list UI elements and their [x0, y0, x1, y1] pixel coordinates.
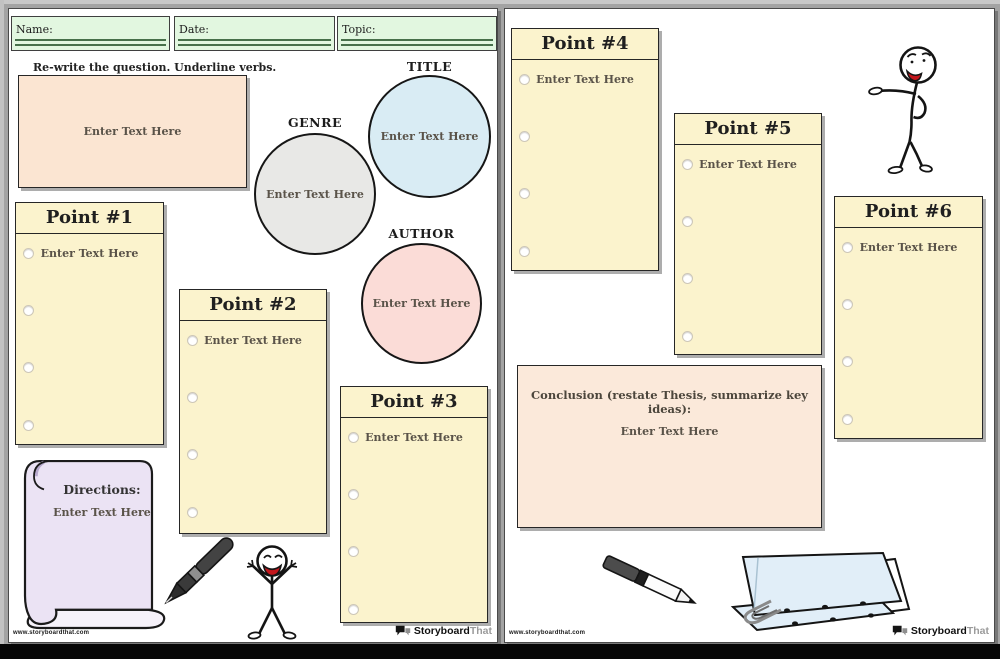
hole-punch — [187, 392, 198, 403]
logo-text-secondary: That — [470, 625, 492, 637]
point-6-box[interactable]: Point #6 Enter Text Here — [834, 196, 983, 439]
hole-punch — [519, 188, 530, 199]
rewrite-question-box[interactable]: Enter Text Here — [18, 75, 247, 188]
name-field-label: Name: — [16, 23, 53, 36]
point-6-placeholder[interactable]: Enter Text Here — [835, 229, 982, 254]
window-edge-left — [0, 0, 4, 659]
title-circle[interactable]: Enter Text Here — [368, 75, 491, 198]
directions-scroll-illustration: Directions: Enter Text Here — [14, 456, 171, 631]
logo-text-primary: Storyboard — [911, 625, 967, 637]
author-circle-placeholder[interactable]: Enter Text Here — [373, 297, 471, 310]
point-5-box[interactable]: Point #5 Enter Text Here — [674, 113, 822, 355]
pointing-stickman-illustration — [865, 44, 945, 184]
point-3-placeholder[interactable]: Enter Text Here — [341, 419, 487, 444]
topic-field[interactable]: Topic: — [337, 16, 497, 51]
paper-stack-illustration — [725, 551, 917, 633]
conclusion-box[interactable]: Conclusion (restate Thesis, summarize ke… — [517, 365, 822, 528]
genre-circle[interactable]: Enter Text Here — [254, 133, 376, 255]
conclusion-label: Conclusion (restate Thesis, summarize ke… — [518, 388, 821, 416]
hole-punch — [519, 246, 530, 257]
hole-punch-column — [187, 335, 197, 518]
storyboardthat-logo: StoryboardThat — [395, 625, 492, 637]
hole-punch-column — [519, 74, 529, 257]
hole-punch — [842, 414, 853, 425]
date-field-underline — [178, 39, 331, 46]
point-4-title: Point #4 — [512, 29, 658, 60]
hole-punch — [23, 420, 34, 431]
hole-punch — [519, 74, 530, 85]
hole-punch — [348, 432, 359, 443]
point-4-placeholder[interactable]: Enter Text Here — [512, 61, 658, 86]
date-field[interactable]: Date: — [174, 16, 335, 51]
point-1-title: Point #1 — [16, 203, 163, 234]
hole-punch-column — [348, 432, 358, 615]
instruction-text: Re-write the question. Underline verbs. — [33, 61, 276, 74]
right-page: Point #4 Enter Text Here Point #5 Enter … — [504, 8, 995, 643]
speech-bubbles-icon — [892, 625, 908, 637]
point-2-title: Point #2 — [180, 290, 326, 321]
title-circle-label: TITLE — [368, 59, 491, 74]
worksheet-canvas: Name: Date: Topic: Re-write the question… — [0, 0, 1000, 659]
marker-pen-icon — [599, 549, 704, 617]
genre-circle-label: GENRE — [254, 115, 376, 130]
hole-punch — [187, 507, 198, 518]
point-1-placeholder[interactable]: Enter Text Here — [16, 235, 163, 260]
logo-text-primary: Storyboard — [414, 625, 470, 637]
conclusion-placeholder[interactable]: Enter Text Here — [518, 425, 821, 438]
pen-icon — [151, 534, 243, 622]
hole-punch — [23, 248, 34, 259]
cheering-stickman-illustration — [241, 542, 305, 644]
rewrite-placeholder[interactable]: Enter Text Here — [84, 125, 182, 138]
site-watermark: www.storyboardthat.com — [509, 630, 585, 636]
hole-punch — [842, 299, 853, 310]
hole-punch — [842, 242, 853, 253]
directions-placeholder[interactable]: Enter Text Here — [39, 506, 165, 519]
directions-title: Directions: — [63, 482, 140, 497]
hole-punch — [682, 331, 693, 342]
marker-pen-illustration — [599, 549, 704, 617]
hole-punch — [519, 131, 530, 142]
hole-punch-column — [682, 159, 692, 342]
hole-punch — [187, 335, 198, 346]
screenshot-bottom-bar — [0, 644, 1000, 659]
author-circle[interactable]: Enter Text Here — [361, 243, 482, 364]
point-2-box[interactable]: Point #2 Enter Text Here — [179, 289, 327, 534]
window-edge-top — [0, 0, 1000, 4]
point-5-title: Point #5 — [675, 114, 821, 145]
point-6-title: Point #6 — [835, 197, 982, 228]
date-field-label: Date: — [179, 23, 209, 36]
stickman-pointing-icon — [865, 44, 945, 184]
hole-punch — [348, 489, 359, 500]
hole-punch — [23, 305, 34, 316]
title-circle-placeholder[interactable]: Enter Text Here — [381, 130, 479, 143]
site-watermark: www.storyboardthat.com — [13, 630, 89, 636]
speech-bubbles-icon — [395, 625, 411, 637]
stickman-cheering-icon — [241, 542, 305, 644]
point-2-placeholder[interactable]: Enter Text Here — [180, 322, 326, 347]
hole-punch-column — [842, 242, 852, 425]
left-page: Name: Date: Topic: Re-write the question… — [8, 8, 498, 643]
hole-punch — [682, 216, 693, 227]
point-5-placeholder[interactable]: Enter Text Here — [675, 146, 821, 171]
hole-punch-column — [23, 248, 33, 431]
storyboardthat-logo: StoryboardThat — [892, 625, 989, 637]
logo-text-secondary: That — [967, 625, 989, 637]
author-circle-label: AUTHOR — [361, 226, 482, 241]
paper-stack-icon — [725, 551, 917, 633]
topic-field-underline — [341, 39, 493, 46]
hole-punch — [842, 356, 853, 367]
point-3-box[interactable]: Point #3 Enter Text Here — [340, 386, 488, 623]
topic-field-label: Topic: — [342, 23, 376, 36]
hole-punch — [682, 159, 693, 170]
name-field-underline — [15, 39, 166, 46]
hole-punch — [187, 449, 198, 460]
genre-circle-placeholder[interactable]: Enter Text Here — [266, 188, 364, 201]
hole-punch — [348, 604, 359, 615]
point-1-box[interactable]: Point #1 Enter Text Here — [15, 202, 164, 445]
hole-punch — [348, 546, 359, 557]
point-3-title: Point #3 — [341, 387, 487, 418]
hole-punch — [23, 362, 34, 373]
name-field[interactable]: Name: — [11, 16, 170, 51]
hole-punch — [682, 273, 693, 284]
pen-illustration — [151, 534, 243, 622]
point-4-box[interactable]: Point #4 Enter Text Here — [511, 28, 659, 271]
